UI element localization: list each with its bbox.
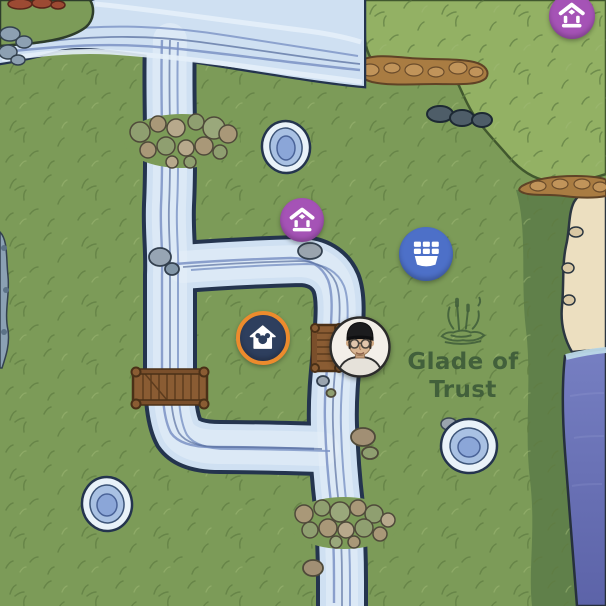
character-home-marker-near[interactable]: [280, 198, 324, 242]
swamp-cattails-icon: [434, 292, 492, 346]
player-home-marker[interactable]: [236, 311, 290, 365]
market-stall-icon: [409, 237, 444, 272]
region-name: Glade of Trust: [388, 348, 538, 404]
region-label: Glade of Trust: [388, 292, 538, 404]
mickey-house-icon: [248, 323, 277, 352]
map-overlay: Glade of Trust: [0, 0, 606, 606]
market-stall-marker[interactable]: [399, 227, 453, 281]
player-portrait: [329, 316, 391, 378]
house-shrine-icon: [288, 206, 316, 234]
valley-map: Glade of Trust: [0, 0, 606, 606]
character-home-marker-far[interactable]: [549, 0, 595, 39]
house-shrine-icon: [557, 1, 586, 30]
player-avatar-marker: [329, 316, 391, 378]
